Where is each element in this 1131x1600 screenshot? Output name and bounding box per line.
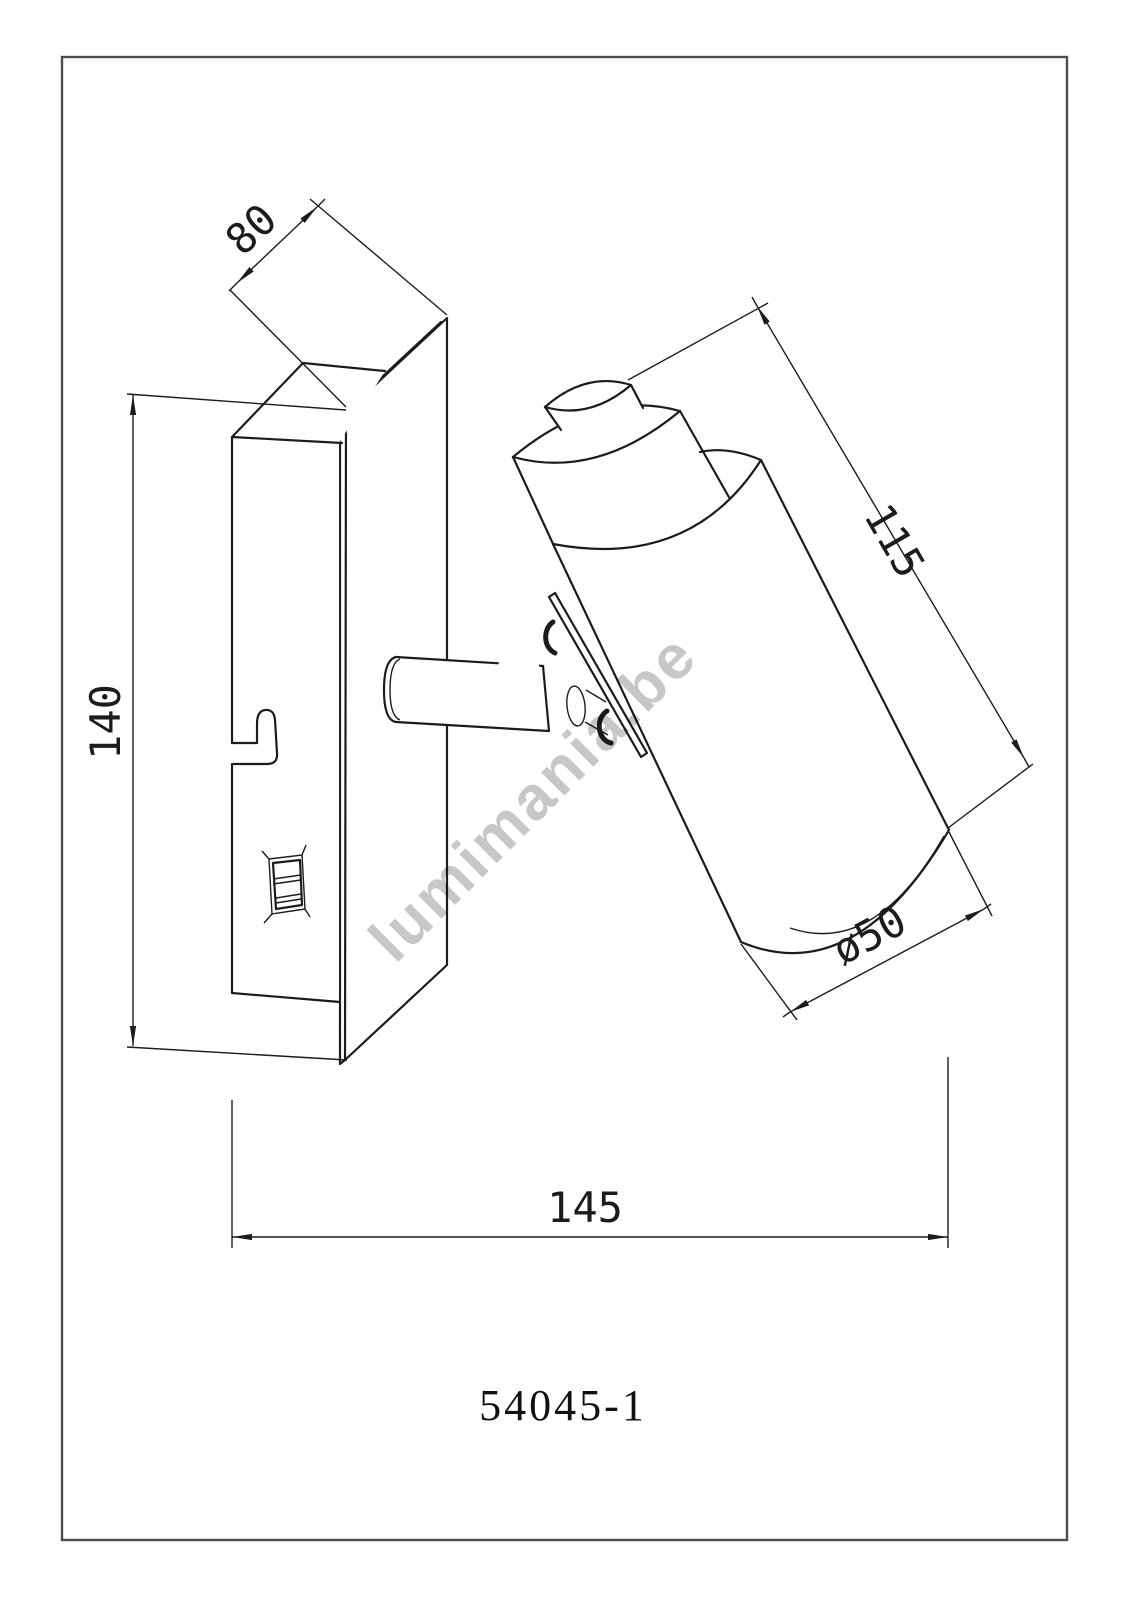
model-number: 54045-1 <box>479 1381 647 1430</box>
bracket-top-lug <box>546 622 555 653</box>
swivel-arm <box>384 648 549 731</box>
drawing-page: lumimania.be 80 140 115 ø50 145 54 <box>0 0 1131 1600</box>
dimension-115-label: 115 <box>854 496 934 586</box>
dimension-145: 145 <box>232 1057 948 1248</box>
lamp-head <box>513 381 949 953</box>
dimension-80-label: 80 <box>216 194 286 264</box>
dimension-140-label: 140 <box>81 684 130 760</box>
technical-drawing: lumimania.be 80 140 115 ø50 145 54 <box>0 0 1131 1600</box>
rocker-switch <box>262 845 312 924</box>
arm-yoke <box>498 648 540 668</box>
dimension-145-label: 145 <box>547 1183 623 1232</box>
